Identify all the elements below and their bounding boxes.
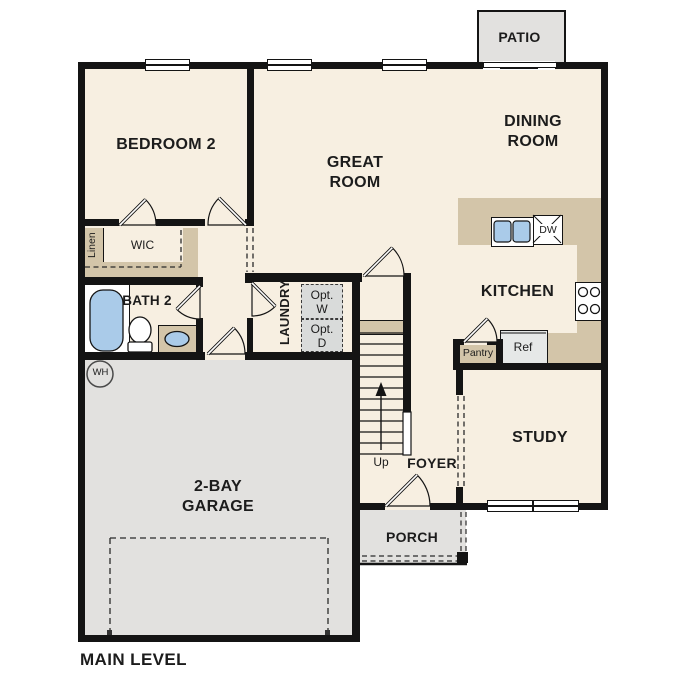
linen-label: Linen	[86, 228, 102, 263]
sink-basin-left	[494, 221, 511, 242]
study-label: STUDY	[480, 428, 600, 448]
great-room-label: GREAT ROOM	[295, 153, 415, 193]
vanity-sink	[165, 332, 189, 347]
laundry-label: LAUNDRY	[277, 273, 296, 351]
main-level-title: MAIN LEVEL	[80, 650, 280, 670]
burner-2	[591, 288, 600, 297]
garage-door-dashed	[110, 538, 328, 634]
sink-basin-right	[513, 221, 530, 242]
dw-label: DW	[535, 224, 561, 237]
burner-3	[579, 305, 588, 314]
pantry-label: Pantry	[459, 347, 497, 360]
kitchen-label: KITCHEN	[455, 282, 580, 302]
bath2-label: BATH 2	[116, 293, 178, 309]
porch-label: PORCH	[372, 529, 452, 545]
patio-label: PATIO	[477, 29, 562, 45]
toilet-tank	[128, 342, 152, 352]
burner-4	[591, 305, 600, 314]
stair-handrail	[403, 412, 411, 455]
ref-label: Ref	[500, 340, 546, 354]
garage-door-corner-right	[325, 630, 330, 635]
water-heater-label: WH	[88, 367, 113, 378]
floor-plan: Opt. W Opt. D	[0, 0, 687, 687]
garage-door-corner-left	[107, 630, 112, 635]
porch-post	[457, 552, 468, 563]
up-label: Up	[367, 455, 395, 469]
plan-overlay	[0, 0, 687, 687]
foyer-label: FOYER	[405, 455, 459, 471]
dining-room-label: DINING ROOM	[473, 112, 593, 152]
wic-label: WIC	[120, 238, 165, 252]
toilet-bowl	[129, 317, 151, 343]
stair-up-arrow	[376, 382, 387, 450]
bedroom2-label: BEDROOM 2	[85, 135, 247, 155]
dw-text: DW	[538, 224, 558, 236]
garage-label: 2-BAY GARAGE	[168, 477, 268, 517]
